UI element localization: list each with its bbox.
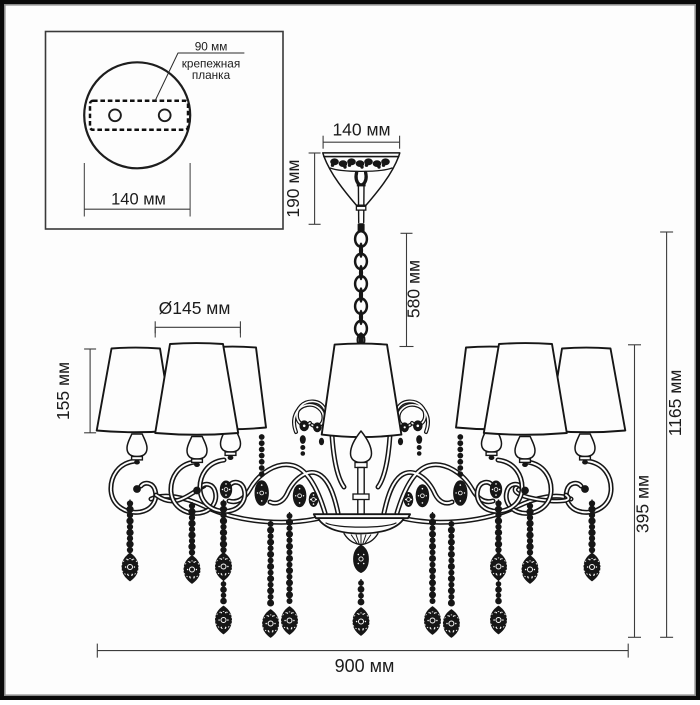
svg-text:190 мм: 190 мм xyxy=(283,160,303,218)
svg-text:Ø145 мм: Ø145 мм xyxy=(159,298,231,318)
svg-text:155 мм: 155 мм xyxy=(53,362,73,420)
svg-text:395 мм: 395 мм xyxy=(633,475,653,533)
svg-text:140 мм: 140 мм xyxy=(332,120,390,140)
svg-text:900 мм: 900 мм xyxy=(335,656,395,676)
svg-text:140 мм: 140 мм xyxy=(111,191,166,209)
svg-text:1165 мм: 1165 мм xyxy=(665,370,685,437)
svg-text:90 мм: 90 мм xyxy=(195,40,228,54)
svg-text:планка: планка xyxy=(192,68,231,82)
svg-text:580 мм: 580 мм xyxy=(404,260,424,318)
